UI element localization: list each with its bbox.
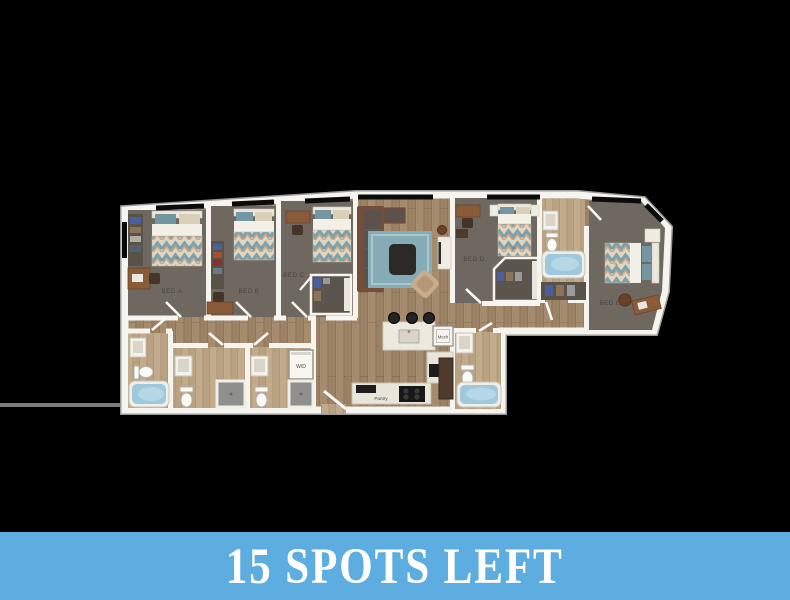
bed-a-closet [128,214,143,266]
island-faucet [408,330,411,333]
bar-stool-2 [407,313,418,324]
bed-d-nightstand-right [531,205,539,216]
bath4-tub [457,382,501,407]
bath3-toilet [255,387,268,407]
bath3-sink [251,356,268,376]
bath5-closet [541,282,586,300]
bed-c-size-tag: XL [330,254,334,258]
media-console [438,237,451,269]
mech-label: Mech [438,335,449,340]
bed-d-label: BED D [463,257,484,263]
bed-d-size-tag: XL [512,246,516,250]
bar-stool-3 [424,313,435,324]
bed-c-label: BED C [283,273,304,279]
bath3-shower [289,381,313,407]
bath2-shower [217,381,245,407]
bed-e-shelf [645,229,660,242]
bath1-tub [129,381,169,407]
window-bed-e [592,199,641,201]
bed-b-closet [211,241,224,289]
bath1-sink [130,338,146,357]
screenshot-canvas: BED A XL BED B X [0,0,790,600]
bed-b-label: BED B [238,289,259,295]
bed-d-nightstand-left [490,205,498,216]
bed-b-size-tag: XL [252,248,256,252]
bath5-sink [543,211,558,230]
bed-e-label: BED E [599,301,620,307]
washer-dryer: W/D [289,350,313,379]
bath2-sink [175,356,192,376]
coffee-table [389,244,416,275]
bed-e-chair [619,294,631,306]
bath2-toilet [180,387,193,407]
floor-plan: BED A XL BED B X [0,0,790,600]
bath5-toilet [546,233,558,252]
bed-d-closet [494,258,538,301]
bed-a-size-tag: XL [175,256,179,260]
fridge [439,358,453,399]
window-bed-b [232,202,274,204]
mech-closet: Mech [433,326,453,346]
counter-appliance [356,385,376,393]
bar-stool-1 [389,313,400,324]
window-bed-c [305,199,350,201]
floor-shadow-line [0,403,126,407]
banner-text: 15 SPOTS LEFT [226,537,564,595]
pantry-label: Pantry [374,396,388,401]
availability-banner: 15 SPOTS LEFT [0,532,790,600]
bed-a-label: BED A [162,289,183,295]
window-bed-a [156,206,204,208]
washer-dryer-label: W/D [296,364,306,370]
side-table [438,226,447,235]
stove [399,386,425,402]
bed-e-size-tag: XL [614,262,618,266]
bath5-tub [542,251,585,278]
bath4-sink [456,333,473,353]
